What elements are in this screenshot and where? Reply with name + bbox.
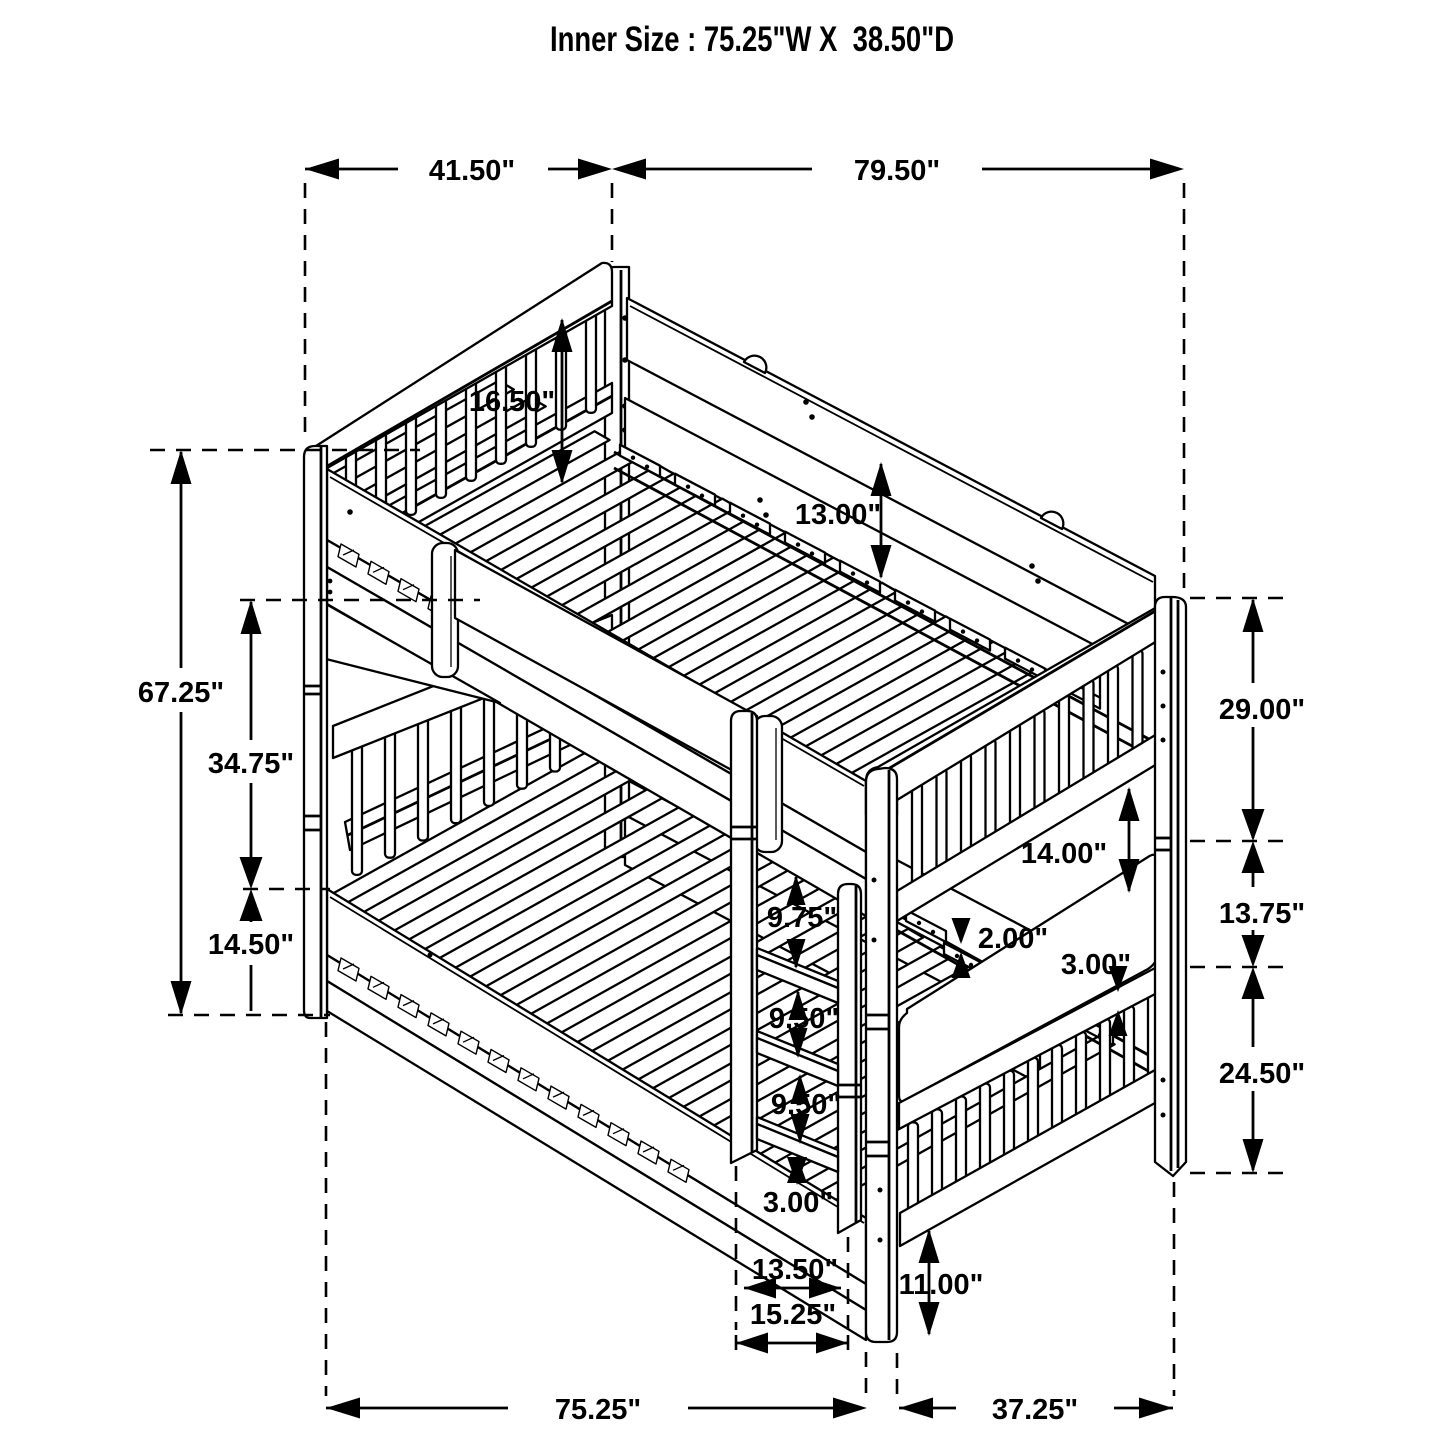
svg-text:75.25": 75.25"	[555, 1394, 641, 1426]
svg-text:29.00": 29.00"	[1219, 694, 1305, 726]
svg-text:24.50": 24.50"	[1219, 1058, 1305, 1090]
svg-text:15.25": 15.25"	[750, 1299, 836, 1331]
svg-text:67.25": 67.25"	[138, 677, 224, 709]
svg-text:9.50": 9.50"	[771, 1089, 841, 1121]
svg-text:16.50": 16.50"	[469, 386, 555, 418]
svg-text:41.50": 41.50"	[429, 155, 515, 187]
svg-text:2.00": 2.00"	[978, 923, 1048, 955]
svg-text:9.50": 9.50"	[769, 1003, 839, 1035]
svg-text:13.75": 13.75"	[1219, 898, 1305, 930]
svg-text:14.00": 14.00"	[1021, 838, 1107, 870]
svg-text:37.25": 37.25"	[992, 1394, 1078, 1426]
svg-text:34.75": 34.75"	[208, 748, 294, 780]
svg-text:11.00": 11.00"	[899, 1269, 984, 1301]
svg-text:Inner Size : 75.25"W X 38.50": Inner Size : 75.25"W X 38.50"D	[550, 20, 954, 59]
svg-text:9.75": 9.75"	[767, 902, 837, 934]
svg-text:14.50": 14.50"	[208, 929, 294, 961]
svg-text:13.00": 13.00"	[795, 499, 881, 531]
svg-text:79.50": 79.50"	[854, 155, 940, 187]
svg-text:3.00": 3.00"	[763, 1187, 833, 1219]
